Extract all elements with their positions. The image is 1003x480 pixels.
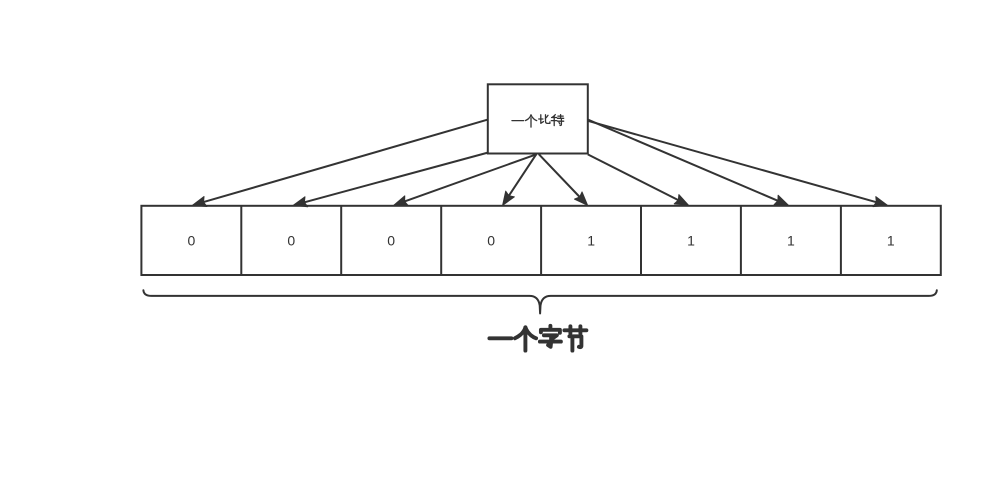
svg-text:1: 1 <box>687 233 695 249</box>
svg-text:1: 1 <box>587 233 595 249</box>
svg-text:1: 1 <box>887 233 895 249</box>
svg-text:0: 0 <box>387 233 395 249</box>
svg-text:1: 1 <box>787 233 795 249</box>
svg-text:0: 0 <box>287 233 295 249</box>
svg-text:0: 0 <box>487 233 495 249</box>
svg-text:0: 0 <box>188 233 196 249</box>
